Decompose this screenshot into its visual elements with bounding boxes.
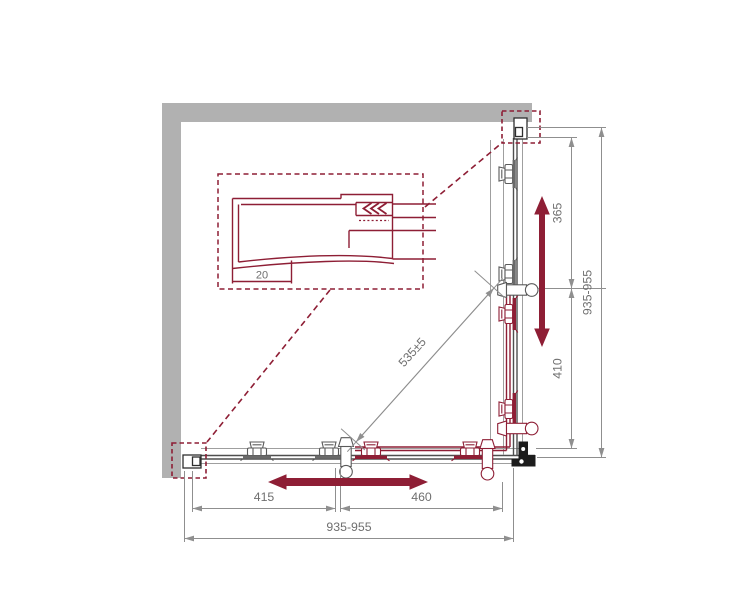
handle-knob-red	[498, 421, 538, 436]
wall-profile-detail-view: 20	[218, 174, 436, 289]
dim-label-460: 460	[411, 490, 432, 504]
handle-knob-gray	[498, 283, 538, 298]
dim-label-535: 535±5	[396, 335, 429, 370]
roller-bracket-gray	[499, 158, 518, 191]
slide-arrow-vertical-icon	[534, 196, 550, 347]
dim-line-535	[356, 288, 494, 442]
plan-drawing-canvas: 20 365 410 935-955 415 460 935-955 535±5	[0, 0, 739, 600]
wall-top-strip	[162, 103, 532, 122]
dim-label-410: 410	[551, 358, 565, 379]
roller-bracket-gray	[241, 442, 274, 461]
profile-cross-section	[233, 195, 437, 269]
detail-leader-line-bottom	[207, 290, 330, 442]
dim-label-bottom-overall: 935-955	[326, 520, 371, 534]
dim-label-20: 20	[256, 270, 268, 282]
dimensions-right: 365 410 935-955	[527, 128, 606, 458]
wall-profile-top-right	[514, 118, 527, 139]
roller-bracket-red	[499, 296, 518, 333]
dim-label-415: 415	[254, 490, 275, 504]
handle-knob-red	[480, 440, 495, 480]
detail-leader-line-top	[425, 142, 503, 207]
sliding-door-edges	[355, 288, 510, 451]
wall-profile-bottom-left	[183, 455, 201, 468]
dim-label-365: 365	[551, 203, 565, 224]
corner-bracket-black	[512, 442, 536, 467]
wall	[162, 103, 532, 478]
shower-enclosure-technical-drawing: 20 365 410 935-955 415 460 935-955 535±5	[0, 0, 739, 600]
roller-bracket-red	[353, 442, 390, 461]
adjust-chevrons-icon	[364, 203, 387, 214]
wall-left-strip	[162, 122, 181, 478]
dimension-diagonal: 535±5	[341, 271, 504, 452]
dim-label-right-overall: 935-955	[581, 270, 595, 315]
slide-direction-arrows	[268, 196, 550, 490]
